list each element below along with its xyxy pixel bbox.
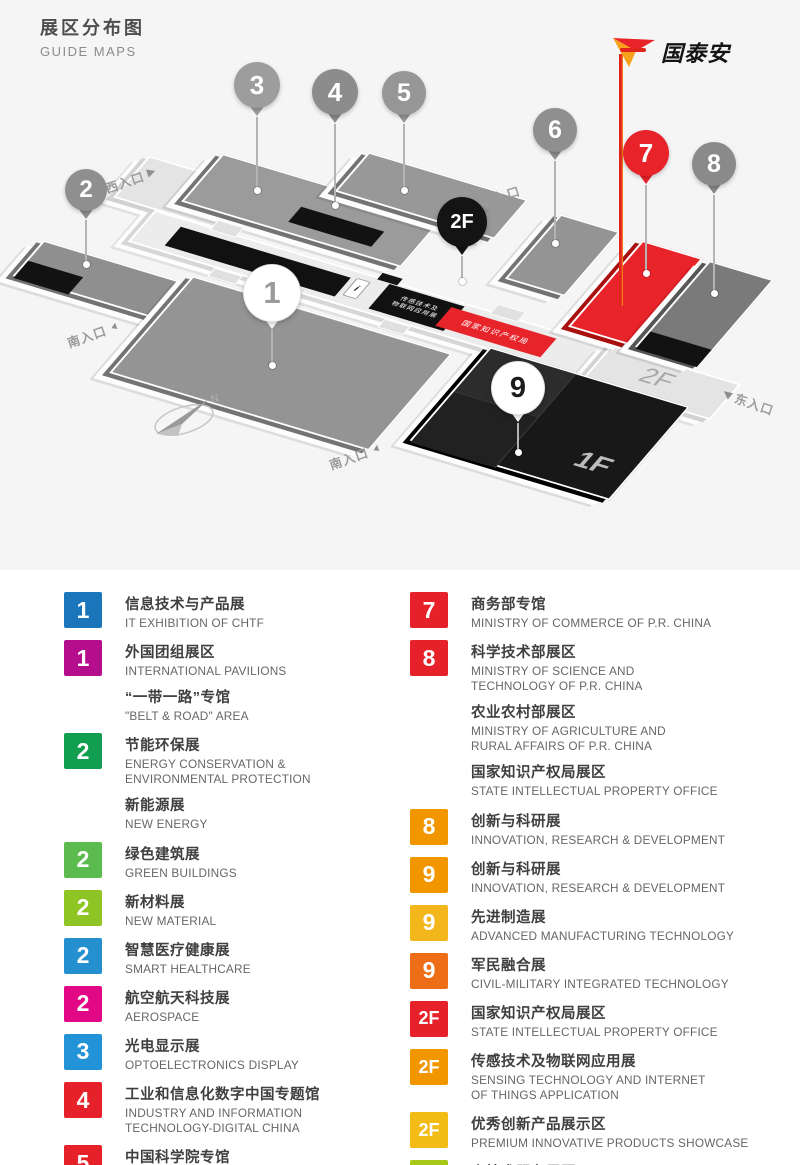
legend-entry-en: MINISTRY OF SCIENCE AND (471, 664, 718, 679)
legend-entry-zh: 信息技术与产品展 (125, 593, 264, 614)
legend-badge: 2F (410, 1001, 448, 1037)
legend-entry-en: "BELT & ROAD" AREA (125, 709, 286, 724)
logo-pointer-elbow (620, 48, 646, 52)
legend-entry-zh: 创新与科研展 (471, 810, 725, 831)
logo-text: 国泰安 (661, 36, 730, 68)
legend-entry: 农业农村部展区MINISTRY OF AGRICULTURE ANDRURAL … (471, 701, 718, 754)
legend-item-text: 先进制造展ADVANCED MANUFACTURING TECHNOLOGY (471, 905, 734, 944)
legend-item-text: 优秀创新产品展示区PREMIUM INNOVATIVE PRODUCTS SHO… (471, 1112, 748, 1151)
legend-entry-en: STATE INTELLECTUAL PROPERTY OFFICE (471, 784, 718, 799)
pin-5: 5 (382, 71, 426, 115)
pin-6: 6 (533, 108, 577, 152)
legend-entry-zh: 航空航天科技展 (125, 987, 230, 1008)
legend-entry-en: NEW ENERGY (125, 817, 311, 832)
legend-item-text: 军民融合展CIVIL-MILITARY INTEGRATED TECHNOLOG… (471, 953, 729, 992)
legend-item-text: 科学技术部展区MINISTRY OF SCIENCE ANDTECHNOLOGY… (471, 640, 718, 799)
compass-n-label: N (209, 392, 220, 406)
legend-entry-en: INNOVATION, RESEARCH & DEVELOPMENT (471, 881, 725, 896)
legend-entry: 先进制造展ADVANCED MANUFACTURING TECHNOLOGY (471, 906, 734, 944)
legend-column-left: 1信息技术与产品展IT EXHIBITION OF CHTF1外国团组展区INT… (64, 592, 410, 1165)
legend-entry: 光电显示展OPTOELECTRONICS DISPLAY (125, 1035, 299, 1073)
legend-entry-en: GREEN BUILDINGS (125, 866, 237, 881)
legend-entry-zh: 智慧医疗健康展 (125, 939, 251, 960)
corridor-bump (210, 220, 245, 238)
legend-item-text: 高技术服务展区INVESTMENT & CONSULTING SERVICES初… (471, 1160, 707, 1165)
legend-item: 7商务部专馆MINISTRY OF COMMERCE OF P.R. CHINA (410, 592, 800, 631)
legend-entry-en: RURAL AFFAIRS OF P.R. CHINA (471, 739, 718, 754)
legend-entry-zh: 国家知识产权局展区 (471, 1002, 718, 1023)
pin-4: 4 (312, 69, 358, 115)
legend-entry-zh: 新能源展 (125, 794, 311, 815)
legend-entry-zh: 节能环保展 (125, 734, 311, 755)
legend-item: 2F优秀创新产品展示区PREMIUM INNOVATIVE PRODUCTS S… (410, 1112, 800, 1151)
legend-item-text: 创新与科研展INNOVATION, RESEARCH & DEVELOPMENT (471, 809, 725, 848)
logo-pointer-line (619, 54, 623, 306)
legend-entry-zh: 优秀创新产品展示区 (471, 1113, 748, 1134)
pin-stem-2F (461, 256, 463, 278)
legend-entry-zh: 科学技术部展区 (471, 641, 718, 662)
legend-item: 2新材料展NEW MATERIAL (64, 890, 410, 929)
legend-item: 2F高技术服务展区INVESTMENT & CONSULTING SERVICE… (410, 1160, 800, 1165)
legend-item-text: 创新与科研展INNOVATION, RESEARCH & DEVELOPMENT (471, 857, 725, 896)
pin-tail-8 (706, 183, 722, 194)
legend-badge: 2 (64, 733, 102, 769)
legend-entry: 智慧医疗健康展SMART HEALTHCARE (125, 939, 251, 977)
legend-entry: 商务部专馆MINISTRY OF COMMERCE OF P.R. CHINA (471, 593, 711, 631)
legend-badge: 1 (64, 640, 102, 676)
page: 展区分布图 GUIDE MAPS 国泰安 2F (0, 0, 800, 1165)
corridor-sipo-strip-text: 国家知识产权局 (459, 318, 532, 346)
legend-entry-zh: 高技术服务展区 (471, 1161, 707, 1165)
legend-entry-en: MINISTRY OF COMMERCE OF P.R. CHINA (471, 616, 711, 631)
legend-entry: 传感技术及物联网应用展SENSING TECHNOLOGY AND INTERN… (471, 1050, 706, 1103)
legend-entry-en: ENVIRONMENTAL PROTECTION (125, 772, 311, 787)
legend-entry: 高技术服务展区INVESTMENT & CONSULTING SERVICES (471, 1161, 707, 1165)
legend-entry: 工业和信息化数字中国专题馆INDUSTRY AND INFORMATIONTEC… (125, 1083, 320, 1136)
hall-2-dark-block (13, 261, 83, 295)
legend-item-text: 中国科学院专馆CHINESE ACADEMY OF SCIENCES (125, 1145, 327, 1165)
legend-entry: 绿色建筑展GREEN BUILDINGS (125, 843, 237, 881)
legend-badge: 2 (64, 890, 102, 926)
legend-section: 1信息技术与产品展IT EXHIBITION OF CHTF1外国团组展区INT… (0, 570, 800, 1165)
legend-entry-zh: 军民融合展 (471, 954, 729, 975)
legend-item: 8科学技术部展区MINISTRY OF SCIENCE ANDTECHNOLOG… (410, 640, 800, 799)
legend-entry-zh: 新材料展 (125, 891, 216, 912)
legend-entry: “一带一路”专馆"BELT & ROAD" AREA (125, 686, 286, 724)
legend-entry: 科学技术部展区MINISTRY OF SCIENCE ANDTECHNOLOGY… (471, 641, 718, 694)
pin-7: 7 (623, 130, 669, 176)
header: 展区分布图 GUIDE MAPS (40, 14, 145, 59)
pin-tail-2 (78, 208, 94, 219)
legend-entry-en: INDUSTRY AND INFORMATION (125, 1106, 320, 1121)
legend-badge: 2F (410, 1112, 448, 1148)
legend-item-text: 智慧医疗健康展SMART HEALTHCARE (125, 938, 251, 977)
legend-item: 3光电显示展OPTOELECTRONICS DISPLAY (64, 1034, 410, 1073)
entrance-label: 东入口 (732, 388, 776, 419)
legend-badge: 2 (64, 938, 102, 974)
legend-badge: 9 (410, 905, 448, 941)
entrance-arrow-icon: ▲ (109, 320, 121, 332)
legend-entry-en: CIVIL-MILITARY INTEGRATED TECHNOLOGY (471, 977, 729, 992)
entrance-arrow-icon: ▲ (371, 442, 383, 454)
pin-2: 2 (65, 169, 107, 211)
legend-item: 2F国家知识产权局展区STATE INTELLECTUAL PROPERTY O… (410, 1001, 800, 1040)
legend-badge: 8 (410, 640, 448, 676)
legend-entry: 创新与科研展INNOVATION, RESEARCH & DEVELOPMENT (471, 858, 725, 896)
legend-item: 2F传感技术及物联网应用展SENSING TECHNOLOGY AND INTE… (410, 1049, 800, 1103)
legend-entry: 信息技术与产品展IT EXHIBITION OF CHTF (125, 593, 264, 631)
legend-entry-zh: 光电显示展 (125, 1035, 299, 1056)
legend-entry-zh: 中国科学院专馆 (125, 1146, 327, 1165)
legend-item-text: 信息技术与产品展IT EXHIBITION OF CHTF (125, 592, 264, 631)
legend-badge: 9 (410, 953, 448, 989)
pin-dot-2F (459, 278, 466, 285)
guide-map-section: 展区分布图 GUIDE MAPS 国泰安 2F (0, 0, 800, 570)
entrance-east: ◀东入口 (720, 384, 777, 419)
legend-entry-zh: 工业和信息化数字中国专题馆 (125, 1083, 320, 1104)
legend-entry: 新材料展NEW MATERIAL (125, 891, 216, 929)
legend-entry: 节能环保展ENERGY CONSERVATION &ENVIRONMENTAL … (125, 734, 311, 787)
legend-entry-en: MINISTRY OF AGRICULTURE AND (471, 724, 718, 739)
legend-entry: 中国科学院专馆CHINESE ACADEMY OF SCIENCES (125, 1146, 327, 1165)
entrance-label: 南入口 (64, 320, 108, 351)
legend-entry-zh: 外国团组展区 (125, 641, 286, 662)
legend-entry-en: INNOVATION, RESEARCH & DEVELOPMENT (471, 833, 725, 848)
pin-tail-7 (638, 173, 654, 184)
legend-item: 1信息技术与产品展IT EXHIBITION OF CHTF (64, 592, 410, 631)
legend-item-text: 节能环保展ENERGY CONSERVATION &ENVIRONMENTAL … (125, 733, 311, 832)
legend-entry-zh: 传感技术及物联网应用展 (471, 1050, 706, 1071)
legend-item: 2节能环保展ENERGY CONSERVATION &ENVIRONMENTAL… (64, 733, 410, 832)
legend-entry-en: PREMIUM INNOVATIVE PRODUCTS SHOWCASE (471, 1136, 748, 1151)
legend-item-text: 传感技术及物联网应用展SENSING TECHNOLOGY AND INTERN… (471, 1049, 706, 1103)
pin-tail-5 (396, 112, 412, 123)
legend-entry-zh: 创新与科研展 (471, 858, 725, 879)
legend-item-text: 新材料展NEW MATERIAL (125, 890, 216, 929)
legend-entry-en: INTERNATIONAL PAVILIONS (125, 664, 286, 679)
legend-badge: 2F (410, 1160, 448, 1165)
legend-entry-en: TECHNOLOGY OF P.R. CHINA (471, 679, 718, 694)
legend-entry-zh: 先进制造展 (471, 906, 734, 927)
legend-entry: 国家知识产权局展区STATE INTELLECTUAL PROPERTY OFF… (471, 761, 718, 799)
legend-entry-en: OF THINGS APPLICATION (471, 1088, 706, 1103)
legend-item-text: 商务部专馆MINISTRY OF COMMERCE OF P.R. CHINA (471, 592, 711, 631)
legend-entry-en: IT EXHIBITION OF CHTF (125, 616, 264, 631)
legend-badge: 2 (64, 842, 102, 878)
legend-entry-en: OPTOELECTRONICS DISPLAY (125, 1058, 299, 1073)
legend-column-right: 7商务部专馆MINISTRY OF COMMERCE OF P.R. CHINA… (410, 592, 800, 1165)
pin-3: 3 (234, 62, 280, 108)
page-title: 展区分布图 (40, 14, 145, 40)
legend-entry-en: STATE INTELLECTUAL PROPERTY OFFICE (471, 1025, 718, 1040)
legend-badge: 4 (64, 1082, 102, 1118)
legend-item: 5中国科学院专馆CHINESE ACADEMY OF SCIENCES (64, 1145, 410, 1165)
page-subtitle: GUIDE MAPS (40, 44, 145, 59)
legend-entry: 军民融合展CIVIL-MILITARY INTEGRATED TECHNOLOG… (471, 954, 729, 992)
legend-item: 2智慧医疗健康展SMART HEALTHCARE (64, 938, 410, 977)
legend-entry-zh: 绿色建筑展 (125, 843, 237, 864)
legend-item-text: 国家知识产权局展区STATE INTELLECTUAL PROPERTY OFF… (471, 1001, 718, 1040)
legend-item-text: 光电显示展OPTOELECTRONICS DISPLAY (125, 1034, 299, 1073)
legend-item: 8创新与科研展INNOVATION, RESEARCH & DEVELOPMEN… (410, 809, 800, 848)
legend-entry: 外国团组展区INTERNATIONAL PAVILIONS (125, 641, 286, 679)
guotaian-logo: 国泰安 (612, 36, 730, 68)
legend-item-text: 绿色建筑展GREEN BUILDINGS (125, 842, 237, 881)
entrance-south-west: 南入口▲ (64, 315, 123, 351)
pin-tail-6 (547, 149, 563, 160)
legend-entry: 航空航天科技展AEROSPACE (125, 987, 230, 1025)
legend-entry-zh: 商务部专馆 (471, 593, 711, 614)
legend-item: 2航空航天科技展AEROSPACE (64, 986, 410, 1025)
legend-entry-en: SENSING TECHNOLOGY AND INTERNET (471, 1073, 706, 1088)
legend-entry: 新能源展NEW ENERGY (125, 794, 311, 832)
legend-item-text: 工业和信息化数字中国专题馆INDUSTRY AND INFORMATIONTEC… (125, 1082, 320, 1136)
legend-item: 4工业和信息化数字中国专题馆INDUSTRY AND INFORMATIONTE… (64, 1082, 410, 1136)
legend-item: 9先进制造展ADVANCED MANUFACTURING TECHNOLOGY (410, 905, 800, 944)
legend-entry: 优秀创新产品展示区PREMIUM INNOVATIVE PRODUCTS SHO… (471, 1113, 748, 1151)
legend-entry-en: ENERGY CONSERVATION & (125, 757, 311, 772)
legend-badge: 3 (64, 1034, 102, 1070)
pin-tail-2F (454, 244, 470, 255)
legend-badge: 8 (410, 809, 448, 845)
legend-item: 9军民融合展CIVIL-MILITARY INTEGRATED TECHNOLO… (410, 953, 800, 992)
legend-badge: 7 (410, 592, 448, 628)
legend-item: 1外国团组展区INTERNATIONAL PAVILIONS“一带一路”专馆"B… (64, 640, 410, 724)
legend-badge: 2 (64, 986, 102, 1022)
legend-entry-zh: 国家知识产权局展区 (471, 761, 718, 782)
legend-entry-en: ADVANCED MANUFACTURING TECHNOLOGY (471, 929, 734, 944)
floor-label-east-2f: 2F (632, 363, 682, 394)
hall-4-dark-block (288, 207, 384, 247)
legend-badge: 9 (410, 857, 448, 893)
legend-entry-en: SMART HEALTHCARE (125, 962, 251, 977)
pin-tail-4 (327, 112, 343, 123)
legend-entry: 创新与科研展INNOVATION, RESEARCH & DEVELOPMENT (471, 810, 725, 848)
legend-badge: 5 (64, 1145, 102, 1165)
legend-item: 9创新与科研展INNOVATION, RESEARCH & DEVELOPMEN… (410, 857, 800, 896)
legend-entry-en: TECHNOLOGY-DIGITAL CHINA (125, 1121, 320, 1136)
entrance-label: 南入口 (326, 442, 370, 473)
compass-north-icon: N (148, 390, 228, 444)
legend-item-text: 外国团组展区INTERNATIONAL PAVILIONS“一带一路”专馆"BE… (125, 640, 286, 724)
legend-entry-en: NEW MATERIAL (125, 914, 216, 929)
legend-badge: 2F (410, 1049, 448, 1085)
legend-item-text: 航空航天科技展AEROSPACE (125, 986, 230, 1025)
legend-item: 2绿色建筑展GREEN BUILDINGS (64, 842, 410, 881)
pin-8: 8 (692, 142, 736, 186)
legend-badge: 1 (64, 592, 102, 628)
pin-tail-3 (249, 105, 265, 116)
legend-entry-zh: “一带一路”专馆 (125, 686, 286, 707)
legend-entry: 国家知识产权局展区STATE INTELLECTUAL PROPERTY OFF… (471, 1002, 718, 1040)
legend-entry-en: AEROSPACE (125, 1010, 230, 1025)
legend-entry-zh: 农业农村部展区 (471, 701, 718, 722)
